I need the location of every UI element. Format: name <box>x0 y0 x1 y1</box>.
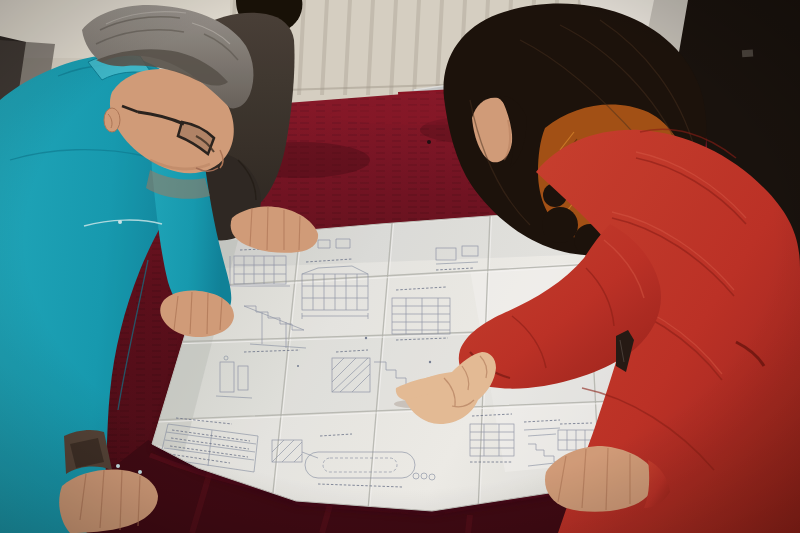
photo-canvas <box>0 0 800 533</box>
warm-tint <box>0 0 800 533</box>
photo-scene <box>0 0 800 533</box>
